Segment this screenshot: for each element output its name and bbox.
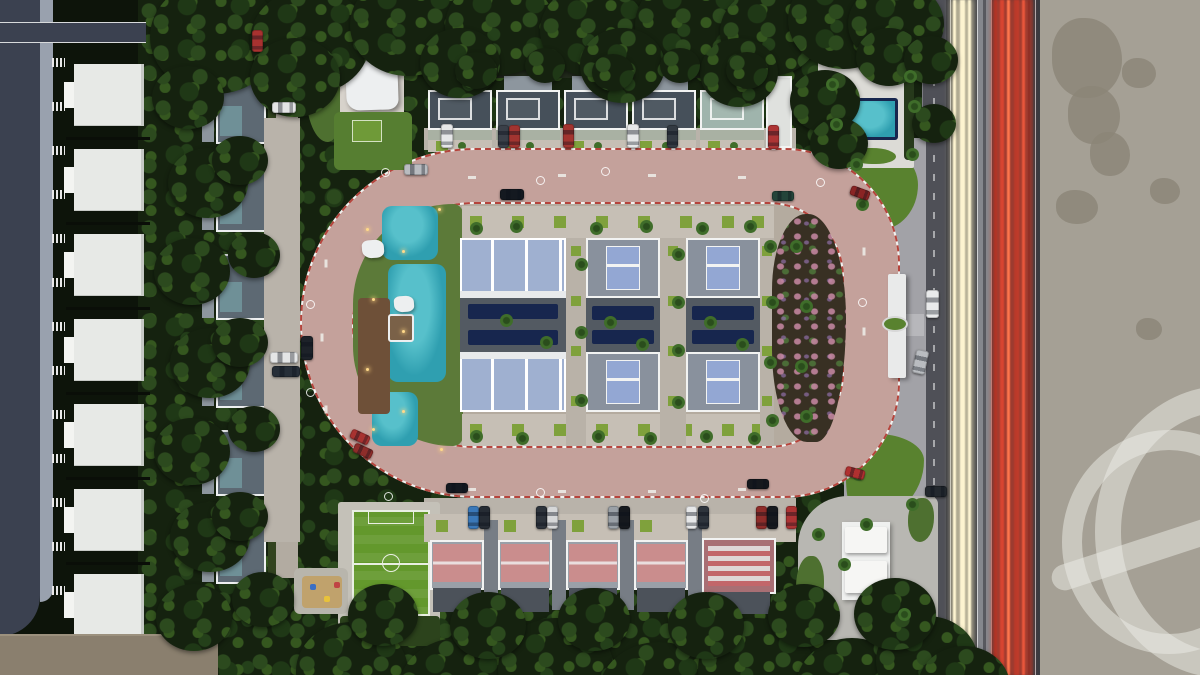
villa-roof-bar-s-0 (606, 378, 640, 381)
car-11 (252, 30, 263, 52)
road-dash-11 (863, 248, 866, 256)
taillight-trail-5 (1028, 0, 1030, 675)
villa-roof-panel-s-0 (606, 360, 640, 404)
north-villa-lower-0 (428, 130, 492, 140)
garden-light-7 (402, 330, 405, 333)
tree-canopy-20 (592, 54, 634, 91)
flower-island (772, 214, 846, 442)
road-circle-mark-3 (384, 492, 393, 501)
palm-5 (744, 220, 757, 233)
car-18 (479, 506, 490, 529)
tree-canopy-49 (854, 578, 936, 650)
north-villa-roof-inner-2 (574, 98, 608, 120)
tree-canopy-30 (212, 136, 268, 185)
palm-0 (470, 222, 483, 235)
palm-3 (640, 220, 653, 233)
west-villa-roof-teal-0 (220, 106, 242, 136)
car-2 (509, 125, 520, 148)
south-stair-strip-2 (620, 520, 634, 610)
car-16 (446, 483, 468, 493)
road-circle-mark-9 (536, 488, 545, 497)
car-14 (270, 352, 298, 363)
headlight-trail-0 (953, 0, 956, 675)
taillight-trail-4 (1022, 0, 1025, 675)
car-3 (563, 124, 574, 148)
tree-canopy-29 (156, 584, 232, 651)
south-villa-striped-roof (708, 546, 770, 586)
palm-31 (906, 148, 919, 161)
warehouse-roof-5 (74, 489, 144, 551)
walkway-lawn-0-0 (571, 246, 581, 256)
tree-canopy-18 (455, 52, 497, 89)
boundary-fence-4 (66, 477, 150, 480)
garden-light-2 (366, 368, 369, 371)
highway-median-centerline (983, 0, 986, 675)
road-dash-3 (738, 176, 746, 179)
palm-15 (636, 338, 649, 351)
palm-45 (800, 410, 813, 423)
tree-canopy-22 (726, 52, 768, 89)
highway-edge-line-0 (950, 0, 951, 675)
entrance-crosswalk (906, 314, 924, 336)
south-villa-roof-3 (637, 544, 685, 582)
boundary-fence-5 (66, 562, 150, 565)
warehouse-entry-tab-4 (64, 422, 74, 448)
townhouse-balcony-band-north (460, 291, 566, 298)
south-villa-lawn-0 (436, 520, 448, 532)
car-31 (747, 479, 769, 489)
car-22 (619, 506, 630, 529)
park-mini-court (352, 120, 382, 142)
headlight-trail-1 (960, 0, 965, 675)
warehouse-entry-tab-0 (64, 82, 74, 108)
car-12 (272, 102, 296, 113)
palm-25 (764, 240, 777, 253)
warehouse-entry-tab-2 (64, 252, 74, 278)
curb-marking-8 (52, 410, 65, 419)
curb-marking-4 (52, 234, 65, 243)
tree-canopy-19 (525, 48, 565, 83)
villa-roof-panel-s-1 (706, 360, 740, 404)
road-dash-2 (648, 174, 656, 177)
yard-lawn-n-5 (680, 216, 692, 228)
north-villa-roof-inner-0 (438, 98, 472, 120)
road-dash-8 (558, 490, 566, 493)
garden-light-5 (440, 448, 443, 451)
sand-dark-patch-3 (1122, 58, 1156, 88)
garden-light-3 (372, 428, 375, 431)
palm-44 (795, 360, 808, 373)
desert-sand (1040, 0, 1200, 675)
road-dash-5 (321, 334, 324, 342)
townhouse-block-north (460, 238, 566, 298)
road-circle-mark-0 (381, 168, 390, 177)
south-villa-roof-1 (501, 544, 549, 582)
road-dash-10 (738, 488, 746, 491)
curb-marking-0 (52, 58, 65, 67)
tree-canopy-32 (212, 318, 268, 367)
amenity-wood-deck (358, 298, 390, 414)
south-villa-roof-2 (569, 544, 617, 582)
playground-toy-2 (334, 582, 340, 588)
palm-19 (672, 296, 685, 309)
tree-canopy-33 (228, 406, 280, 452)
car-34 (925, 486, 947, 497)
field-center-circle (382, 554, 400, 572)
highway-edge-line-1 (1035, 0, 1036, 675)
playground-toy-1 (324, 596, 330, 602)
palm-22 (575, 258, 588, 271)
tree-canopy-44 (348, 584, 418, 646)
taillight-underlay (991, 0, 1033, 675)
tree-canopy-46 (558, 588, 630, 651)
palm-12 (500, 314, 513, 327)
boundary-fence-3 (66, 392, 150, 395)
road-dash-4 (325, 260, 328, 268)
palm-6 (470, 430, 483, 443)
south-villa-lawn-1 (504, 520, 516, 532)
villa-roof-panel-n-1 (706, 246, 740, 290)
south-stair-strip-1 (552, 520, 566, 610)
road-dash-9 (648, 490, 656, 493)
palm-9 (644, 432, 657, 445)
curb-marking-5 (52, 278, 65, 287)
warehouse-roof-6 (74, 574, 144, 636)
north-villa-lower-4 (700, 130, 764, 140)
townhouse-balcony-band-south (460, 352, 566, 359)
tree-canopy-23 (152, 66, 224, 129)
palm-2 (590, 222, 603, 235)
warehouse-entry-tab-6 (64, 592, 74, 618)
palm-43 (800, 300, 813, 313)
walkway-lawn-2-3 (762, 396, 772, 406)
taillight-trail-3 (1014, 0, 1019, 675)
west-cross-road (0, 22, 146, 43)
palm-1 (510, 220, 523, 233)
car-8 (500, 189, 524, 200)
walkway-1 (660, 238, 686, 446)
warehouse-roof-0 (74, 64, 144, 126)
car-7 (404, 164, 428, 175)
garden-light-1 (372, 298, 375, 301)
palm-7 (516, 432, 529, 445)
palm-23 (575, 326, 588, 339)
car-17 (468, 506, 479, 529)
palm-18 (672, 248, 685, 261)
palm-14 (604, 316, 617, 329)
palm-4 (696, 222, 709, 235)
road-circle-mark-7 (858, 298, 867, 307)
curb-marking-11 (52, 542, 65, 551)
west-road-curb (40, 0, 53, 602)
south-villa-lawn-3 (640, 520, 652, 532)
road-circle-mark-1 (601, 167, 610, 176)
warehouse-roof-1 (74, 149, 144, 211)
palm-21 (672, 396, 685, 409)
walkway-lawn-0-1 (571, 296, 581, 306)
curb-marking-9 (52, 454, 65, 463)
entrance-oval-island (882, 316, 908, 332)
car-23 (686, 506, 697, 529)
garden-light-0 (366, 228, 369, 231)
car-1 (498, 125, 509, 148)
yard-lawn-n-2 (554, 216, 566, 228)
tree-canopy-47 (668, 592, 744, 659)
west-road (0, 0, 40, 636)
townhouse-block-south (460, 352, 566, 412)
yard-lawn-s-6 (722, 424, 734, 436)
palm-41 (812, 528, 825, 541)
palm-42 (790, 240, 803, 253)
taillight-trail-1 (1000, 0, 1004, 675)
private-pool-2-0 (692, 306, 754, 320)
sand-dark-patch-5 (1150, 178, 1180, 204)
amenity-pavilion (388, 314, 414, 342)
south-villa-lawn-2 (572, 520, 584, 532)
north-villa-roof-inner-3 (642, 98, 676, 120)
palm-27 (764, 356, 777, 369)
lagoon-pool-0 (382, 206, 438, 260)
playground-toy-0 (310, 584, 316, 590)
garden-light-8 (402, 410, 405, 413)
curb-marking-7 (52, 366, 65, 375)
palm-13 (540, 336, 553, 349)
walkway-lawn-2-2 (762, 346, 772, 356)
warehouse-roof-4 (74, 404, 144, 466)
north-villa-roof-inner-1 (506, 98, 540, 120)
road-circle-mark-5 (306, 300, 315, 309)
villa-roof-bar-n-1 (706, 264, 740, 267)
road-dash-7 (468, 488, 476, 491)
palm-11 (748, 432, 761, 445)
south-villa-roof-0 (433, 544, 481, 582)
walkway-lawn-0-2 (571, 346, 581, 356)
road-dash-0 (468, 176, 476, 179)
warehouse-entry-tab-1 (64, 167, 74, 193)
car-27 (786, 506, 797, 529)
curb-marking-10 (52, 498, 65, 507)
palm-26 (766, 296, 779, 309)
boundary-fence-2 (66, 307, 150, 310)
shade-sail-0 (361, 239, 384, 258)
car-19 (536, 506, 547, 529)
palm-10 (700, 430, 713, 443)
palm-16 (704, 316, 717, 329)
scene-canvas (0, 0, 1200, 675)
sand-dark-patch-6 (1136, 318, 1162, 340)
field-goal-box-0 (368, 510, 414, 524)
tree-canopy-21 (660, 48, 700, 83)
palm-17 (736, 338, 749, 351)
headlight-trail-2 (968, 0, 971, 675)
taillight-trail-0 (994, 0, 997, 675)
car-4 (627, 124, 639, 148)
villa-roof-panel-n-0 (606, 246, 640, 290)
tree-canopy-35 (232, 572, 294, 627)
palm-24 (575, 394, 588, 407)
road-dash-12 (863, 328, 866, 336)
road-dash-6 (325, 406, 328, 414)
car-0 (441, 124, 453, 148)
private-pool-1-0 (592, 306, 654, 320)
garden-light-4 (438, 208, 441, 211)
tree-canopy-25 (154, 238, 230, 305)
boundary-fence-1 (66, 222, 150, 225)
shade-sail-1 (393, 295, 414, 312)
curb-marking-6 (52, 322, 65, 331)
car-20 (547, 506, 558, 529)
road-circle-mark-2 (816, 178, 825, 187)
car-15 (272, 366, 300, 377)
car-13 (301, 336, 313, 360)
tree-canopy-45 (450, 592, 526, 659)
warehouse-roof-2 (74, 234, 144, 296)
playground-sand (302, 576, 342, 608)
private-pool-0-0 (468, 304, 558, 319)
tree-canopy-31 (228, 232, 280, 278)
car-24 (698, 506, 709, 529)
palm-20 (672, 344, 685, 357)
road-circle-mark-4 (700, 494, 709, 503)
warehouse-entry-tab-3 (64, 337, 74, 363)
villa-roof-bar-s-1 (706, 378, 740, 381)
palm-34 (860, 518, 873, 531)
car-21 (608, 506, 619, 529)
sand-dark-patch-2 (1090, 132, 1130, 176)
garden-light-6 (402, 250, 405, 253)
road-circle-mark-8 (536, 176, 545, 185)
villa-roof-bar-n-0 (606, 264, 640, 267)
palm-39 (838, 558, 851, 571)
car-25 (756, 506, 767, 529)
palm-28 (766, 414, 779, 427)
palm-8 (592, 430, 605, 443)
tree-canopy-27 (154, 418, 230, 485)
palm-35 (826, 78, 839, 91)
car-5 (667, 125, 678, 148)
palm-38 (908, 100, 921, 113)
north-villa-lower-3 (632, 130, 696, 140)
car-32 (926, 290, 939, 318)
car-26 (767, 506, 778, 529)
sand-dark-patch-4 (1056, 190, 1098, 224)
palm-29 (850, 158, 863, 171)
curb-marking-2 (52, 146, 65, 155)
yard-lawn-s-2 (554, 424, 566, 436)
parking-strip-west (264, 118, 300, 542)
road-dash-1 (558, 174, 566, 177)
palm-37 (904, 70, 917, 83)
warehouse-roof-3 (74, 319, 144, 381)
warehouse-entry-tab-5 (64, 507, 74, 533)
boundary-fence-0 (66, 137, 150, 140)
car-9 (772, 191, 794, 201)
palm-36 (830, 118, 843, 131)
yard-lawn-n-6 (722, 216, 734, 228)
road-circle-mark-6 (306, 388, 315, 397)
tree-canopy-34 (212, 492, 268, 541)
palm-33 (906, 498, 919, 511)
taillight-trail-2 (1007, 0, 1010, 675)
palm-40 (898, 608, 911, 621)
car-6 (768, 125, 779, 149)
tree-canopy-48 (768, 584, 840, 647)
